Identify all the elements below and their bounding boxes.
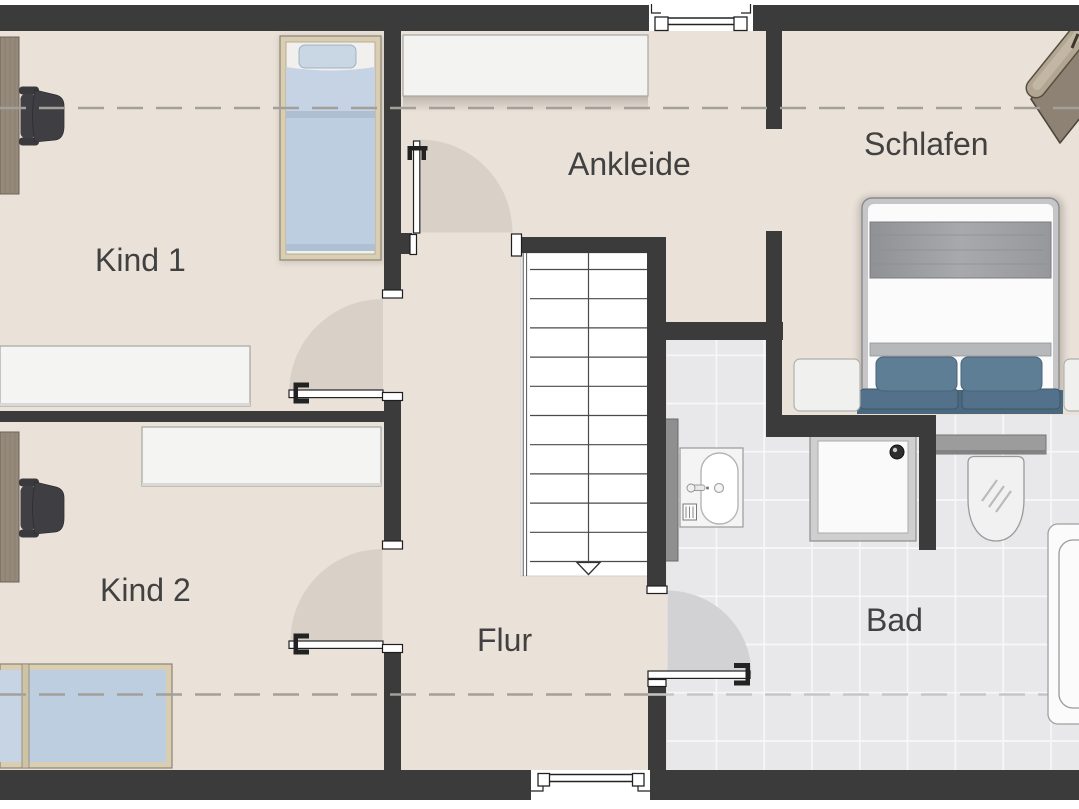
svg-text:Kind 1: Kind 1 <box>95 242 186 278</box>
svg-text:Schlafen: Schlafen <box>864 126 989 162</box>
svg-text:Ankleide: Ankleide <box>568 146 691 182</box>
svg-text:Flur: Flur <box>477 622 532 658</box>
svg-text:Bad: Bad <box>866 602 923 638</box>
svg-text:Kind 2: Kind 2 <box>100 572 191 608</box>
